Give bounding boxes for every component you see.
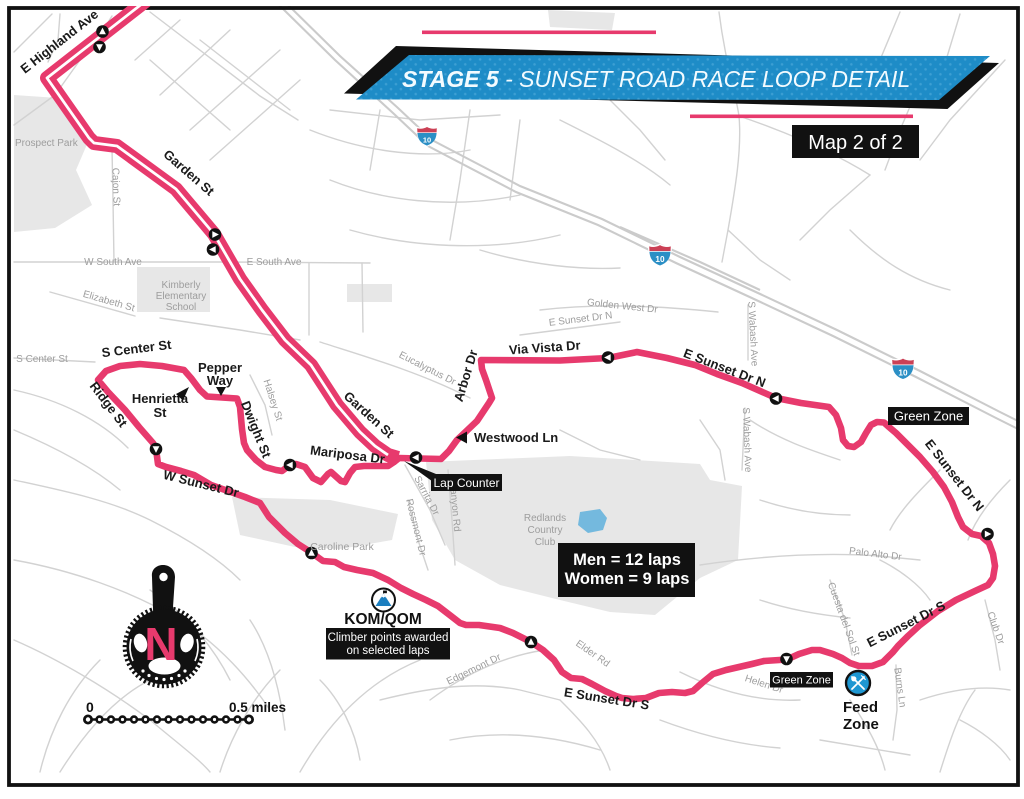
svg-text:Westwood Ln: Westwood Ln xyxy=(474,430,558,445)
svg-text:10: 10 xyxy=(898,369,908,378)
svg-text:Women = 9 laps: Women = 9 laps xyxy=(565,570,690,588)
svg-text:10: 10 xyxy=(423,136,431,145)
svg-text:Kimberly: Kimberly xyxy=(162,280,201,291)
svg-text:Caroline Park: Caroline Park xyxy=(310,541,374,553)
svg-text:on selected laps: on selected laps xyxy=(346,645,429,657)
svg-text:Cajon St: Cajon St xyxy=(109,168,121,207)
svg-text:Prospect Park: Prospect Park xyxy=(15,138,79,149)
svg-text:Green Zone: Green Zone xyxy=(772,675,831,687)
svg-text:STAGE 5 - SUNSET ROAD RACE LOO: STAGE 5 - SUNSET ROAD RACE LOOP DETAIL xyxy=(402,66,910,92)
svg-text:E South Ave: E South Ave xyxy=(247,257,302,268)
svg-text:Lap Counter: Lap Counter xyxy=(433,476,499,490)
svg-text:Green Zone: Green Zone xyxy=(894,409,963,424)
svg-text:0.5 miles: 0.5 miles xyxy=(229,700,286,715)
svg-text:Redlands: Redlands xyxy=(524,513,566,524)
svg-text:10: 10 xyxy=(655,255,665,264)
svg-text:School: School xyxy=(166,302,197,313)
svg-text:N: N xyxy=(144,618,177,670)
svg-text:Club: Club xyxy=(535,537,556,548)
svg-text:St: St xyxy=(154,405,168,420)
svg-text:Way: Way xyxy=(207,373,234,388)
svg-text:Zone: Zone xyxy=(843,716,879,733)
svg-text:Elementary: Elementary xyxy=(156,291,207,302)
svg-text:Feed: Feed xyxy=(843,699,878,716)
svg-text:Men = 12 laps: Men = 12 laps xyxy=(573,551,681,569)
svg-text:S Center St: S Center St xyxy=(16,354,68,365)
svg-text:W South Ave: W South Ave xyxy=(84,257,142,268)
svg-text:Country: Country xyxy=(527,525,562,536)
svg-text:KOM/QOM: KOM/QOM xyxy=(344,611,422,628)
svg-text:S Wabash Ave: S Wabash Ave xyxy=(740,407,753,473)
svg-text:0: 0 xyxy=(86,699,94,715)
svg-text:Map 2 of 2: Map 2 of 2 xyxy=(808,132,903,154)
svg-text:Climber points awarded: Climber points awarded xyxy=(328,632,449,644)
